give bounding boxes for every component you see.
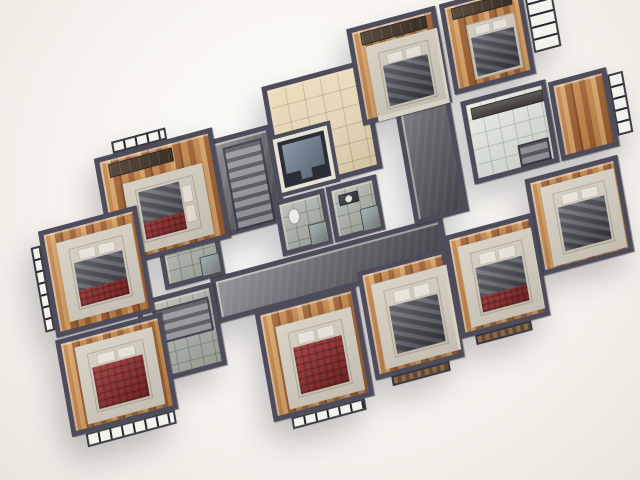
bed — [552, 180, 615, 255]
bed — [87, 339, 153, 413]
mattress — [383, 276, 449, 357]
bathroom-center-1 — [273, 188, 333, 257]
toilet — [287, 207, 301, 226]
shower — [308, 220, 330, 246]
bedroom-bottom-3 — [443, 213, 550, 339]
duvet — [138, 181, 187, 239]
bed — [68, 235, 133, 311]
bedroom-mid-right — [524, 155, 634, 276]
shower — [360, 204, 382, 232]
bedroom-top-right-2 — [439, 0, 536, 95]
counter — [470, 89, 544, 120]
mattress — [466, 12, 524, 80]
elevator-cab — [282, 135, 327, 183]
floorplan-render — [8, 0, 640, 480]
stairs — [222, 138, 275, 231]
stairs — [517, 137, 552, 167]
bed — [466, 12, 524, 80]
bed — [287, 318, 353, 398]
vanity — [338, 190, 359, 206]
render-backdrop — [0, 0, 640, 480]
pillow — [184, 203, 198, 223]
bed — [135, 175, 202, 244]
bed — [470, 239, 533, 316]
kitchen-white — [460, 79, 560, 185]
pillow — [181, 184, 195, 204]
mattress — [287, 318, 353, 398]
mattress — [470, 239, 533, 316]
bed — [378, 39, 438, 110]
bathroom-center-2 — [325, 174, 385, 243]
shower — [199, 252, 222, 277]
bed — [383, 276, 449, 357]
